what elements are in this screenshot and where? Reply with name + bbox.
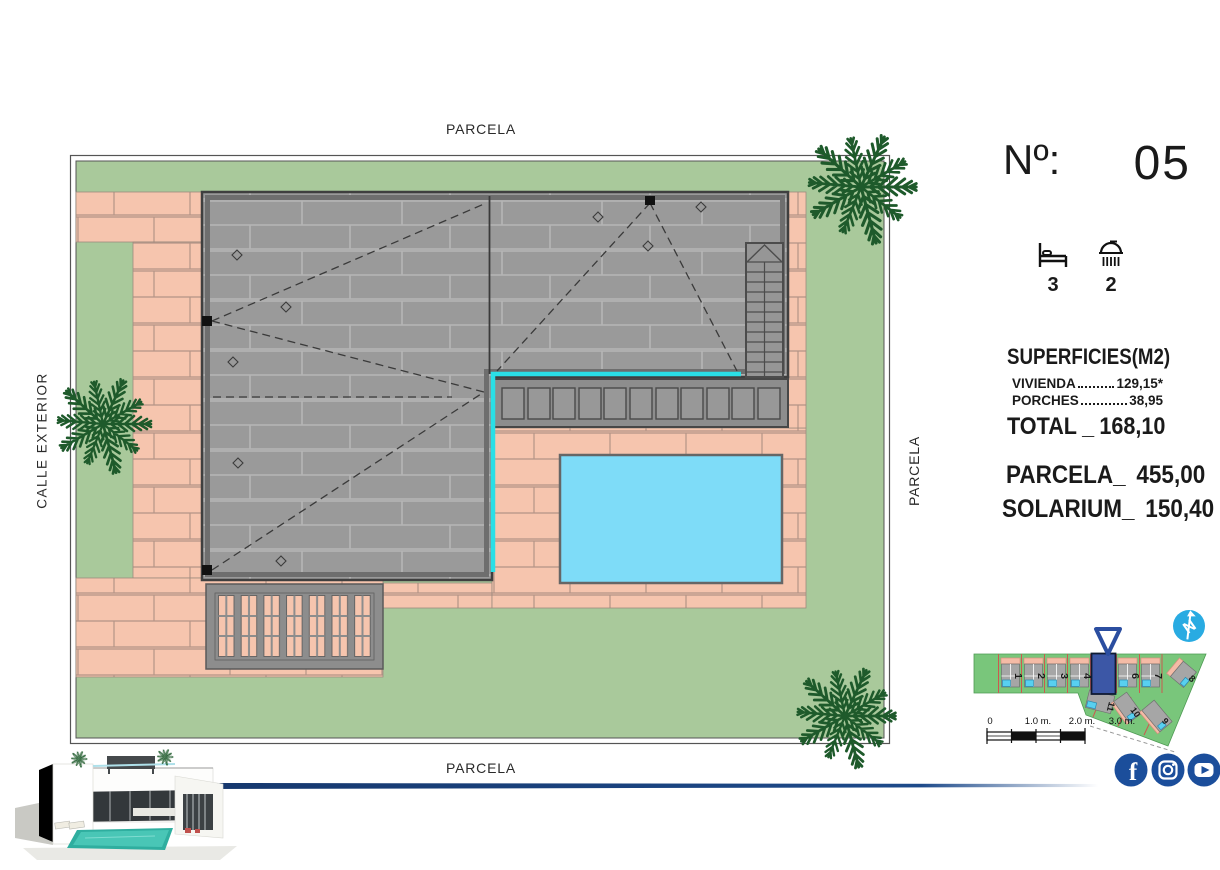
bathrooms-feature: 2 — [1092, 240, 1130, 297]
bathrooms-count: 2 — [1105, 274, 1116, 297]
label-parcela-top: PARCELA — [421, 121, 541, 137]
area-row-vivienda: VIVIENDA 129,15* — [1012, 376, 1163, 391]
solarium-label: SOLARIUM_ — [1002, 495, 1135, 524]
shower-icon — [1094, 240, 1128, 270]
facebook-icon[interactable]: f — [1115, 754, 1148, 787]
location-marker-icon — [1096, 629, 1120, 654]
scale-label-3m: 3.0 m. — [1109, 716, 1135, 727]
plot-number-label: Nº: — [1003, 136, 1060, 184]
svg-text:f: f — [1129, 759, 1138, 786]
total-label: TOTAL — [1007, 413, 1077, 441]
minimap-plot-2-label: 2 — [1035, 673, 1047, 679]
villa-render — [15, 749, 237, 860]
parcela-label: PARCELA_ — [1006, 461, 1126, 490]
social-icons: f — [1115, 754, 1220, 787]
area-row-porches: PORCHES 38,95 — [1012, 393, 1163, 408]
label-parcela-right: PARCELA — [906, 411, 922, 531]
scale-label-1m: 1.0 m. — [1025, 716, 1051, 727]
scale-label-2m: 2.0 m. — [1069, 716, 1095, 727]
bedrooms-count: 3 — [1047, 274, 1058, 297]
carport-pergola — [206, 584, 383, 669]
bed-icon — [1036, 240, 1070, 270]
label-calle-exterior: CALLE EXTERIOR — [35, 366, 50, 516]
area-row-parcela: PARCELA_ 455,00 — [1006, 461, 1205, 490]
minimap-plot-1-label: 1 — [1012, 673, 1024, 679]
vivienda-value: 129,15* — [1116, 376, 1163, 391]
area-row-solarium: SOLARIUM_ 150,40 — [1002, 495, 1214, 524]
brochure-page: 1 2 3 4 6 7 8 9 10 11 N — [0, 0, 1220, 870]
paving-right-strip — [788, 192, 806, 428]
minimap-plot-7-label: 7 — [1152, 673, 1164, 679]
label-parcela-bottom: PARCELA — [421, 760, 541, 776]
porch-pergola — [494, 379, 788, 427]
vivienda-label: VIVIENDA — [1012, 376, 1076, 391]
minimap-plot-3-label: 3 — [1058, 673, 1070, 679]
area-row-total: TOTAL _ 168,10 — [1007, 413, 1165, 441]
solarium-value: 150,40 — [1145, 495, 1214, 524]
dotted-leader — [1081, 403, 1127, 405]
bedrooms-feature: 3 — [1034, 240, 1072, 297]
instagram-icon[interactable] — [1152, 754, 1185, 787]
minimap-plot-6-label: 6 — [1129, 673, 1141, 679]
porches-value: 38,95 — [1129, 393, 1163, 408]
plot-number-header: Nº: 05 — [1003, 136, 1191, 191]
north-arrow-icon: N — [1173, 610, 1205, 642]
parcela-value: 455,00 — [1136, 461, 1205, 490]
youtube-icon[interactable] — [1188, 754, 1220, 787]
location-minimap: 1 2 3 4 6 7 8 9 10 11 N — [974, 610, 1206, 752]
dotted-leader — [1078, 386, 1115, 388]
paving-connector — [383, 583, 492, 608]
areas-title: SUPERFICIES(M2) — [1007, 344, 1170, 370]
paving-left-walk — [133, 242, 203, 578]
scale-bar — [987, 728, 1085, 744]
paving-entry-path — [76, 192, 203, 242]
total-value: 168,10 — [1099, 413, 1165, 441]
swimming-pool — [560, 455, 782, 583]
features-row: 3 2 — [1034, 240, 1130, 297]
divider-line — [214, 783, 1098, 789]
total-separator: _ — [1082, 413, 1094, 441]
solarium-stairs — [746, 243, 783, 377]
porches-label: PORCHES — [1012, 393, 1079, 408]
scale-label-0: 0 — [987, 716, 992, 727]
plot-number-value: 05 — [1134, 136, 1191, 191]
minimap-highlighted-plot-5 — [1092, 654, 1116, 695]
